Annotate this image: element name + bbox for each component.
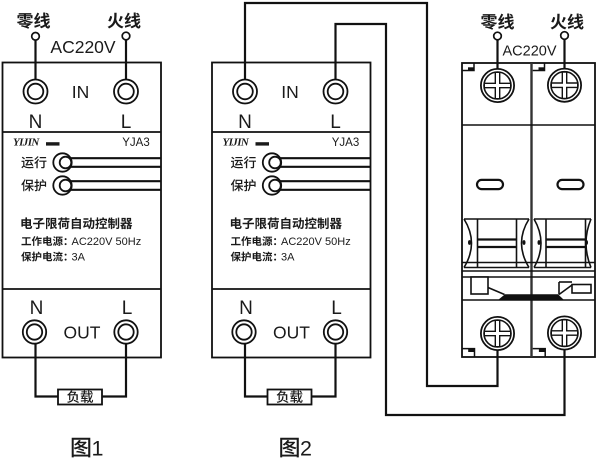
svg-text:IN: IN: [281, 82, 299, 102]
svg-text:L: L: [122, 298, 133, 319]
svg-text:OUT: OUT: [273, 322, 310, 342]
svg-text:N: N: [30, 298, 44, 319]
svg-text:L: L: [121, 112, 132, 133]
svg-text:YIJIN: YIJIN: [223, 137, 250, 149]
svg-text:AC220V: AC220V: [50, 37, 116, 57]
svg-text:N: N: [239, 298, 253, 319]
svg-text:N: N: [238, 112, 252, 133]
svg-text:2: 2: [300, 437, 312, 458]
svg-text:N: N: [29, 112, 43, 133]
svg-text:AC220V: AC220V: [502, 44, 556, 60]
svg-text:L: L: [331, 298, 342, 319]
svg-text:YJA3: YJA3: [122, 137, 150, 149]
svg-text:L: L: [330, 112, 341, 133]
svg-text:YJA3: YJA3: [332, 137, 360, 149]
svg-text:IN: IN: [72, 82, 90, 102]
svg-text:3A: 3A: [281, 252, 295, 264]
svg-text:AC220V 50Hz: AC220V 50Hz: [72, 236, 142, 248]
svg-text:YIJIN: YIJIN: [13, 137, 40, 149]
svg-text:AC220V 50Hz: AC220V 50Hz: [281, 236, 351, 248]
svg-text:3A: 3A: [72, 252, 86, 264]
svg-text:OUT: OUT: [64, 322, 101, 342]
svg-text:1: 1: [92, 437, 104, 458]
